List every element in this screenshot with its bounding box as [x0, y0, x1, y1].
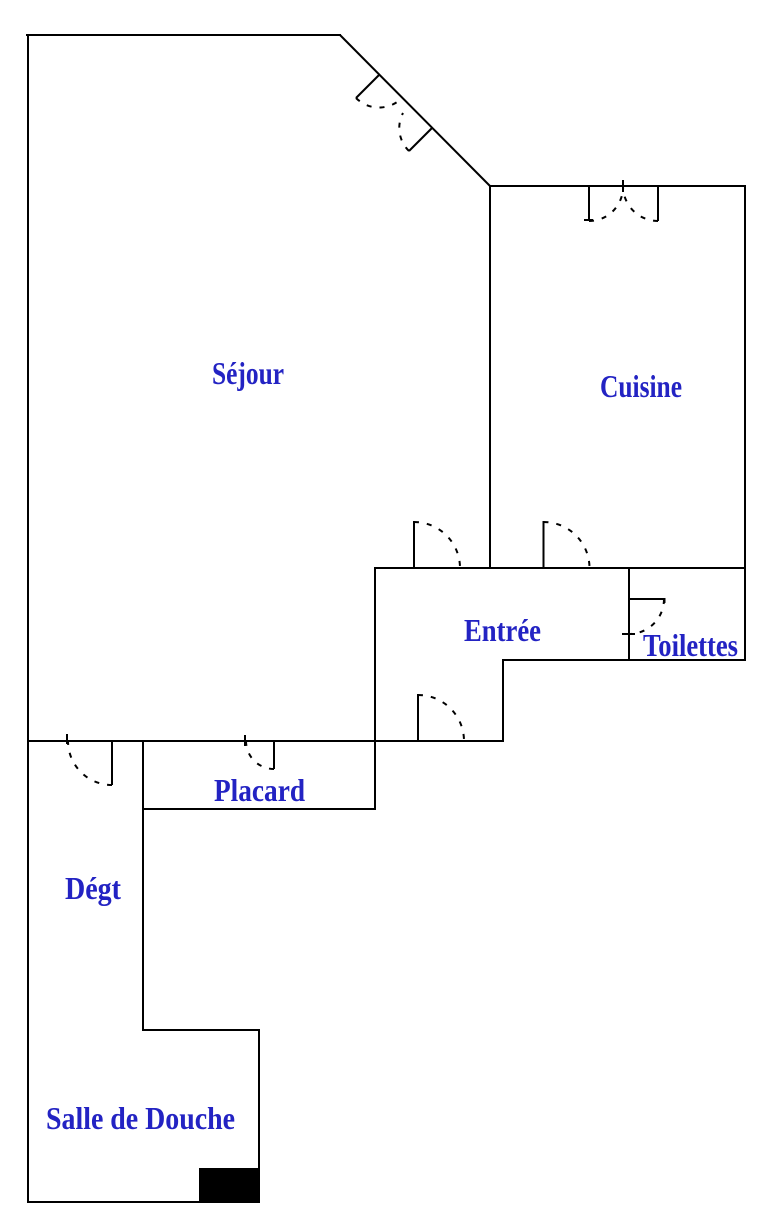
svg-text:Séjour: Séjour: [212, 355, 284, 391]
svg-text:Toilettes: Toilettes: [643, 627, 738, 663]
svg-text:Salle de Douche: Salle de Douche: [46, 1100, 235, 1136]
svg-text:Dégt: Dégt: [65, 870, 121, 906]
svg-text:Placard: Placard: [214, 772, 305, 808]
svg-text:Entrée: Entrée: [464, 612, 541, 648]
svg-text:Cuisine: Cuisine: [600, 368, 682, 404]
